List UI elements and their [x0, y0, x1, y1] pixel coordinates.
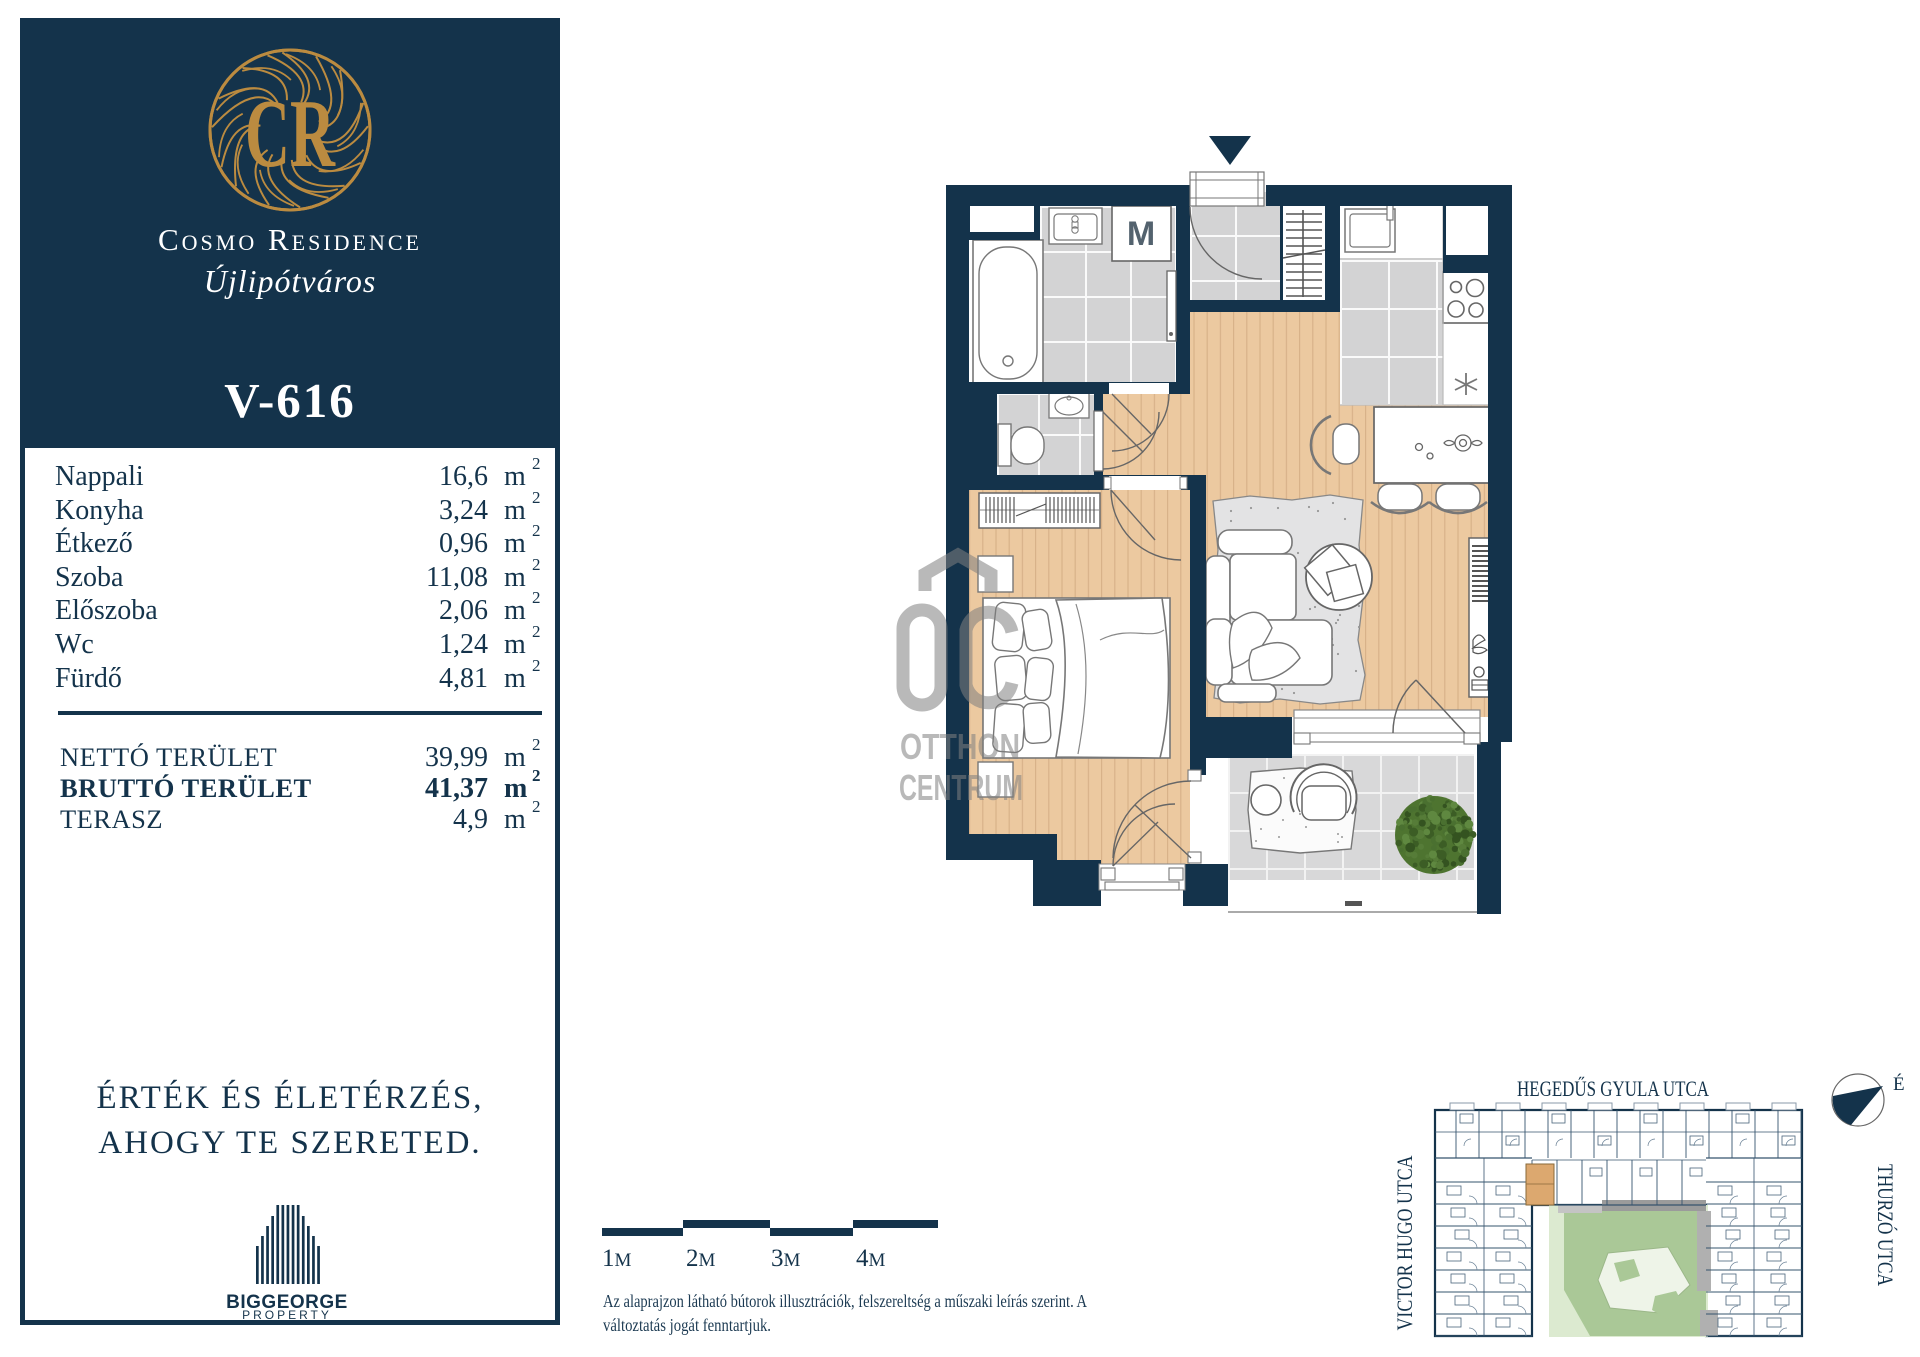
svg-text:OTTHON: OTTHON [900, 726, 1020, 767]
svg-text:M: M [1127, 215, 1155, 253]
svg-text:1M: 1M [602, 1245, 632, 1272]
svg-text:3M: 3M [771, 1245, 801, 1272]
svg-text:THURZÓ UTCA: THURZÓ UTCA [1873, 1164, 1898, 1286]
svg-text:Az alaprajzon látható bútorok: Az alaprajzon látható bútorok illusztrác… [603, 1291, 1087, 1311]
svg-text:2M: 2M [686, 1245, 716, 1272]
svg-text:CENTRUM: CENTRUM [899, 767, 1023, 808]
svg-text:HEGEDŰS GYULA UTCA: HEGEDŰS GYULA UTCA [1517, 1076, 1709, 1101]
svg-text:4M: 4M [856, 1245, 886, 1272]
svg-text:VICTOR HUGO UTCA: VICTOR HUGO UTCA [1392, 1155, 1417, 1330]
svg-text:É: É [1893, 1073, 1905, 1095]
svg-text:változtatás jogát fenntartjuk.: változtatás jogát fenntartjuk. [603, 1315, 771, 1335]
